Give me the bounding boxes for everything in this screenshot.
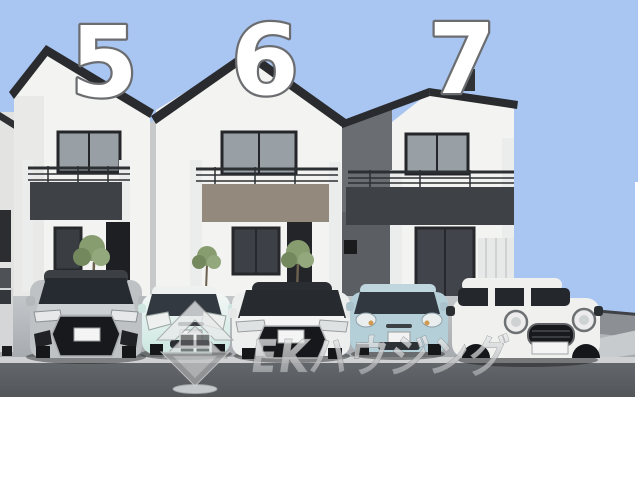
house-5-2f-window [58, 132, 120, 172]
house-6-accent-band [202, 184, 329, 222]
hatch-windshield [354, 292, 440, 314]
neighbor-building-left [0, 112, 16, 298]
house-6-1f-window [233, 228, 279, 274]
suv-windshield [38, 278, 134, 306]
house-5-balcony-railing [28, 166, 130, 183]
house-6-balcony-pillar [190, 160, 202, 294]
car-silver-suv [26, 270, 147, 364]
house-7-meter-box [344, 240, 357, 254]
sedan-windshield [238, 290, 346, 318]
lot-number-5: 5 [70, 6, 138, 119]
crossover-windows [458, 288, 570, 306]
watermark-brand-text: EKハウジング [247, 330, 512, 383]
crossover-license-plate [532, 342, 568, 354]
lot-number-6: 6 [231, 4, 299, 117]
suv-license-plate [74, 328, 100, 341]
house-6-balcony-railing [196, 167, 338, 184]
bottom-white-margin [0, 397, 640, 480]
scene-canvas: EKハウジング 5 6 7 [0, 0, 640, 480]
car-partial-left [0, 288, 13, 356]
rendered-photo: EKハウジング 5 6 7 [0, 0, 640, 480]
right-white-margin [635, 182, 640, 397]
house-7-accent-band [346, 187, 514, 225]
lot-number-7: 7 [428, 3, 496, 116]
neighbor-window [0, 210, 11, 262]
house-7-2f-window [406, 134, 468, 174]
house-5-accent-band [30, 182, 122, 220]
hatch-headlight [356, 313, 376, 327]
